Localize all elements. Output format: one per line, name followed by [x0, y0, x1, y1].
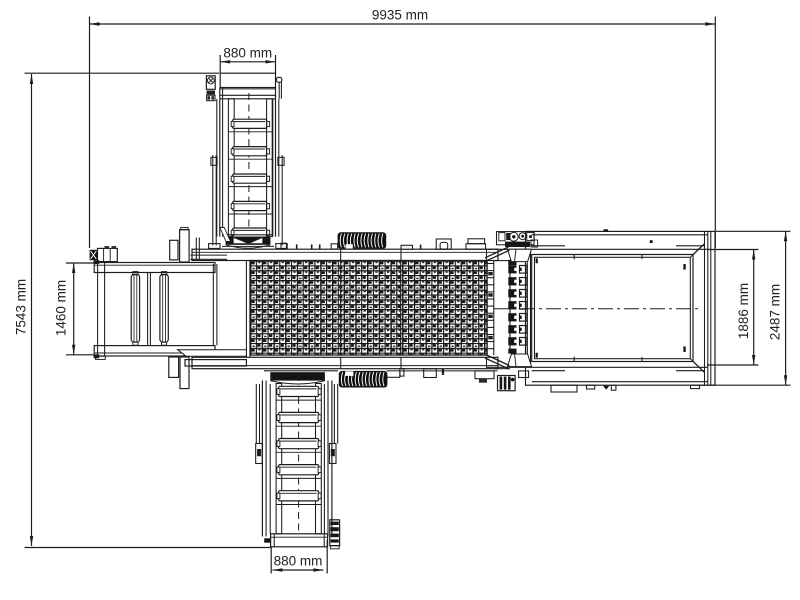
svg-text:9935 mm: 9935 mm [372, 8, 428, 23]
svg-text:7543 mm: 7543 mm [14, 279, 29, 335]
svg-text:1886 mm: 1886 mm [736, 283, 751, 339]
svg-text:1460 mm: 1460 mm [54, 280, 69, 336]
svg-text:880 mm: 880 mm [223, 46, 272, 61]
svg-text:2487 mm: 2487 mm [768, 284, 783, 340]
svg-text:880 mm: 880 mm [274, 554, 323, 569]
